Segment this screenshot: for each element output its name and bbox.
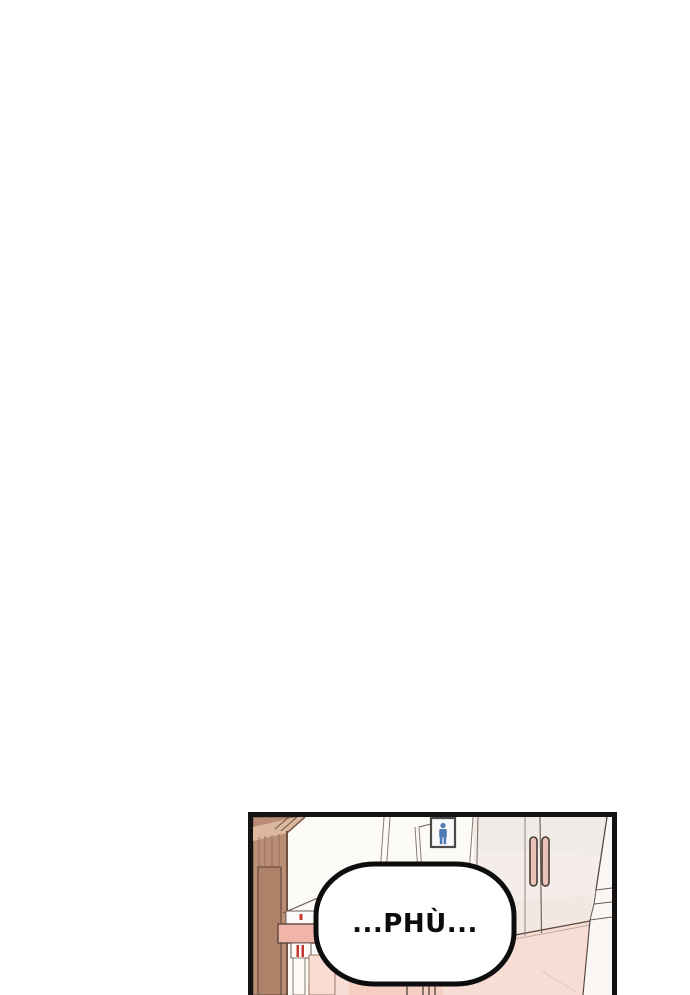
speech-bubble-shape xyxy=(316,864,514,984)
figure-leg-left xyxy=(440,837,443,844)
figure-body xyxy=(439,829,447,837)
signpost-post xyxy=(293,958,305,995)
door-handle-right xyxy=(542,837,549,886)
signpost-red-mark-1 xyxy=(297,945,300,957)
figure-head xyxy=(440,823,445,828)
signpost-lower-box xyxy=(291,943,311,958)
panel-scene xyxy=(253,817,612,995)
signpost-red-dot xyxy=(300,914,303,920)
signpost-red-mark-2 xyxy=(302,945,305,957)
comic-panel: ...PHÙ... xyxy=(248,812,617,995)
door-handle-left xyxy=(530,837,537,886)
speech-bubble xyxy=(316,864,514,984)
webtoon-page: ...PHÙ... xyxy=(0,0,690,995)
figure-leg-right xyxy=(444,837,447,844)
